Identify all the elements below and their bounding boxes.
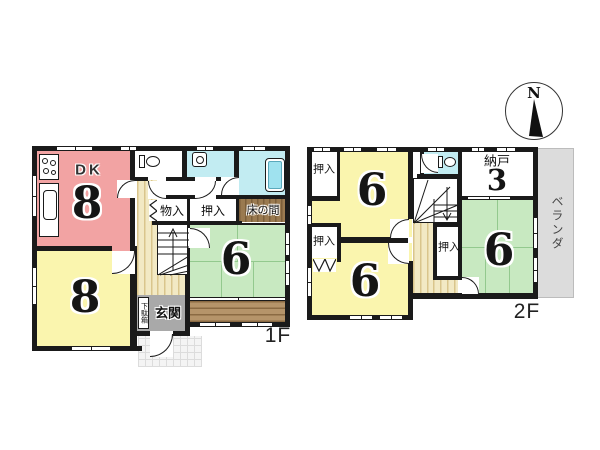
bathtub-icon	[265, 158, 285, 192]
compass-icon: N	[505, 82, 563, 140]
window-symbol	[350, 315, 372, 320]
sink-icon	[192, 152, 207, 167]
wall-segment	[312, 223, 337, 227]
wall-segment	[152, 195, 290, 199]
window-symbol	[497, 147, 515, 152]
wall-segment	[130, 146, 135, 180]
burner	[43, 168, 49, 174]
window-symbol	[533, 258, 538, 282]
room-2f-tatami-size: 6	[484, 229, 515, 273]
floor2-label: 2F	[514, 300, 541, 324]
compass-needle-icon	[506, 83, 562, 139]
room-2f-north-ext	[312, 201, 342, 223]
tub-water	[268, 161, 282, 189]
window-symbol	[285, 233, 290, 255]
sink-basin	[43, 190, 57, 220]
dk-size: 8	[72, 182, 103, 226]
oshiire-2f-nw-label: 押入	[313, 165, 335, 176]
wall-segment	[234, 146, 239, 177]
wall-segment	[433, 276, 462, 280]
door-arc	[462, 277, 479, 294]
wall-segment	[130, 198, 135, 251]
door-arc	[195, 181, 216, 199]
window-symbol	[121, 146, 136, 151]
door-arc	[390, 219, 409, 238]
door-arc	[190, 228, 210, 248]
wall-segment	[135, 177, 148, 181]
window-symbol	[243, 146, 265, 151]
hallway-2f	[413, 223, 433, 293]
wall-segment	[337, 152, 340, 196]
dk-room-label: DK	[75, 162, 103, 179]
toilet-bowl	[146, 156, 160, 167]
wall-segment	[337, 223, 341, 262]
tatami-mat-line	[253, 261, 254, 298]
wall-segment	[408, 261, 413, 315]
window-symbol	[377, 147, 396, 152]
window-symbol	[32, 176, 37, 216]
window-symbol	[197, 146, 213, 151]
wall-segment	[182, 146, 187, 177]
wall-segment	[137, 331, 150, 336]
room-2f-north-size: 6	[357, 169, 388, 213]
burner	[42, 158, 48, 164]
oshiire-2f-e-label: 押入	[438, 243, 460, 254]
folding-door-icon	[149, 200, 157, 221]
wall-segment	[32, 246, 112, 251]
room-1f-tatami-size: 6	[221, 238, 252, 282]
engawa-1f	[190, 301, 285, 322]
floor-plan-canvas: N DK 8 8 6 物入 押入 床の間 玄関 下駄箱 1F 押入 6 納戸 3…	[0, 0, 600, 450]
toilet-icon	[139, 155, 145, 168]
door-arc	[421, 154, 438, 173]
kitchen-sink-icon	[39, 183, 59, 237]
door-arc	[112, 251, 135, 274]
wall-segment	[236, 199, 239, 221]
burner	[50, 160, 56, 166]
wall-segment	[166, 177, 195, 181]
stove-icon	[39, 154, 59, 180]
wall-segment	[187, 199, 190, 221]
folding-door-icon	[313, 259, 336, 272]
oshiire-2f-w-label: 押入	[313, 237, 335, 248]
hallway-2f-east	[433, 280, 458, 293]
stairs-down-icon	[413, 178, 458, 223]
window-symbol	[472, 147, 484, 152]
oshiire-1f-label: 押入	[201, 205, 225, 217]
window-symbol	[72, 346, 110, 351]
veranda-label: ベランダ	[551, 195, 563, 251]
hallway-1f-lower	[157, 275, 188, 295]
door-arc	[221, 177, 239, 195]
stairs-up-icon	[157, 224, 188, 275]
window-symbol	[285, 261, 290, 285]
entrance-door-arc	[150, 334, 173, 357]
window-symbol	[32, 268, 37, 304]
door-arc	[117, 180, 135, 198]
shoji-symbol	[190, 297, 285, 301]
window-symbol	[57, 146, 92, 151]
floor1-label: 1F	[265, 324, 292, 348]
door-arc	[148, 181, 166, 199]
genkan-label: 玄関	[155, 307, 181, 320]
tokonoma-edge-line	[239, 223, 290, 225]
monoire-label: 物入	[160, 205, 184, 217]
window-symbol	[380, 315, 402, 320]
nando-size: 3	[487, 166, 507, 195]
tokonoma-label: 床の間	[247, 206, 280, 217]
window-symbol	[344, 147, 361, 152]
window-symbol	[200, 322, 230, 327]
getabako-label: 下駄箱	[141, 303, 148, 324]
burner	[51, 170, 56, 175]
window-symbol	[307, 206, 312, 224]
window-symbol	[533, 218, 538, 248]
wall-segment	[312, 196, 340, 201]
window-symbol	[428, 147, 444, 152]
wall-segment	[433, 223, 437, 280]
wall-segment	[173, 331, 188, 336]
door-arc	[388, 243, 409, 264]
room-2f-south-size: 6	[350, 260, 381, 304]
room-1f-sw-size: 8	[70, 276, 101, 320]
basin-circle	[196, 156, 204, 164]
window-symbol	[307, 268, 312, 296]
toilet-icon	[438, 156, 443, 168]
toilet-bowl	[444, 157, 456, 167]
window-symbol	[314, 147, 330, 152]
